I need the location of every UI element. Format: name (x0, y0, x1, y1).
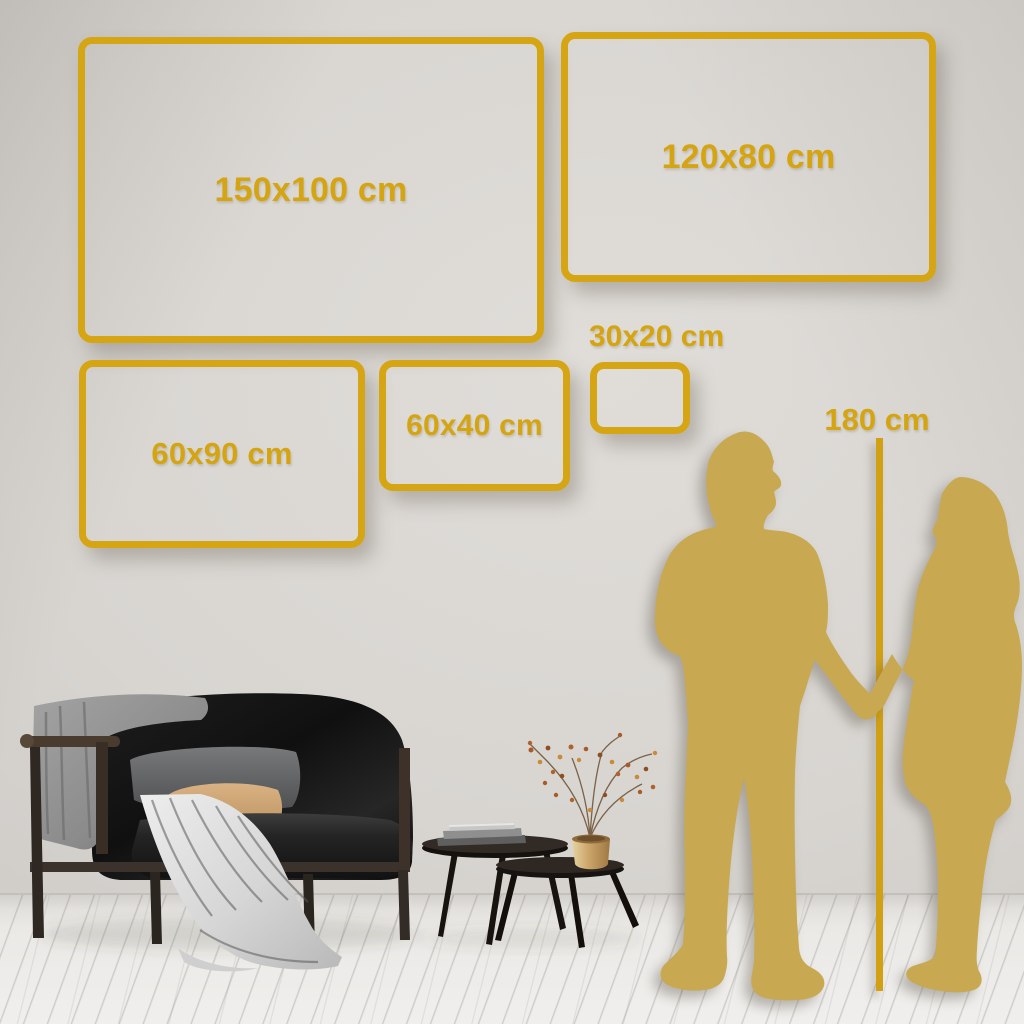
size-label-150x100: 150x100 cm (215, 171, 408, 210)
size-frame-60x90: 60x90 cm (79, 360, 365, 548)
size-frame-150x100: 150x100 cm (78, 37, 544, 343)
man-silhouette (655, 432, 878, 1001)
size-label-60x90: 60x90 cm (151, 436, 292, 472)
size-guide-scene: 150x100 cm 120x80 cm 60x90 cm 60x40 cm 3… (0, 0, 1024, 1024)
height-reference-label: 180 cm (792, 402, 962, 438)
size-frame-30x20 (590, 362, 690, 434)
size-label-60x40: 60x40 cm (406, 409, 543, 443)
size-frame-60x40: 60x40 cm (379, 360, 570, 491)
woman-silhouette (866, 477, 1022, 992)
size-frame-120x80: 120x80 cm (561, 32, 936, 282)
size-label-30x20: 30x20 cm (589, 320, 724, 354)
size-label-120x80: 120x80 cm (662, 138, 836, 177)
